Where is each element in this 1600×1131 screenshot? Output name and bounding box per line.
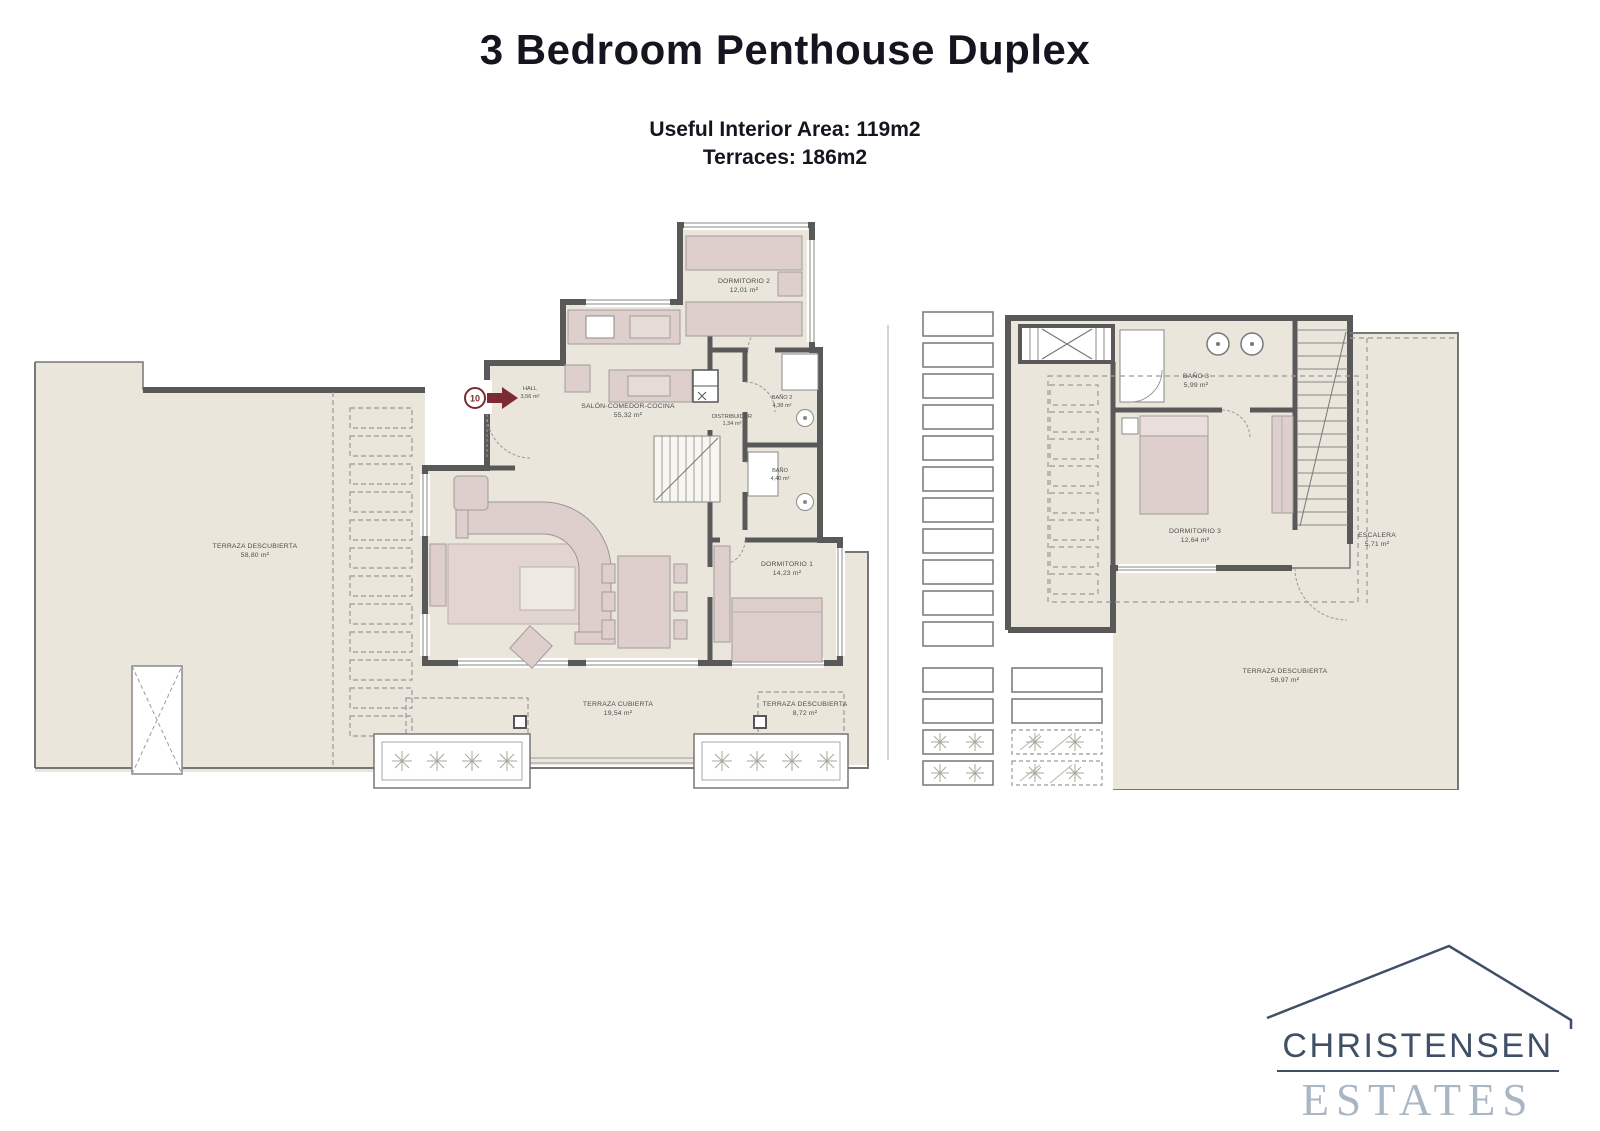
dining-table — [618, 556, 670, 648]
shower-icon — [1120, 330, 1164, 402]
rug-inner — [520, 567, 575, 610]
room-label: DORMITORIO 2 — [718, 278, 770, 285]
room-label: TERRAZA CUBIERTA — [583, 701, 653, 708]
room-label: SALÓN-COMEDOR-COCINA — [581, 401, 675, 410]
elevator-shaft-icon — [1020, 326, 1113, 362]
wardrobe — [714, 546, 730, 642]
room-label: HALL — [523, 386, 537, 392]
room-area: 5,71 m² — [1365, 541, 1390, 548]
company-logo: CHRISTENSEN ESTATES — [1253, 934, 1583, 1126]
room-area: 58,97 m² — [1271, 677, 1300, 684]
bed-icon — [732, 598, 822, 662]
nightstand — [1122, 418, 1138, 434]
floorplan-level2: BAÑO 3 5,99 m² DORMITORIO 3 12,64 m² ESC… — [880, 300, 1460, 790]
room-area: 4,40 m² — [771, 476, 790, 482]
unit-number: 10 — [470, 394, 480, 404]
room-label: BAÑO 2 — [772, 394, 793, 401]
room-label: TERRAZA DESCUBIERTA — [1243, 668, 1328, 675]
room-area: 58,80 m² — [241, 552, 270, 559]
page-title: 3 Bedroom Penthouse Duplex — [0, 26, 1570, 74]
room-label: DORMITORIO 3 — [1169, 528, 1221, 535]
subtitle-interior-area: Useful Interior Area: 119m2 — [0, 116, 1570, 144]
logo-company-type: ESTATES — [1253, 1074, 1583, 1126]
logo-divider — [1277, 1070, 1559, 1072]
room-label: BAÑO — [772, 467, 789, 474]
windows — [1118, 564, 1216, 573]
room-label: DISTRIBUIDOR — [712, 414, 752, 420]
room-area: 5,99 m² — [1184, 382, 1209, 389]
dining-table-set — [602, 556, 687, 648]
room-area: 19,54 m² — [604, 710, 633, 717]
room-area: 55,32 m² — [614, 412, 643, 419]
room-label: DORMITORIO 1 — [761, 561, 813, 568]
armchair — [454, 476, 488, 510]
room-label: BAÑO 3 — [1183, 371, 1209, 380]
room-label: TERRAZA DESCUBIERTA — [213, 543, 298, 550]
planter-right — [694, 734, 848, 788]
room-label: ESCALERA — [1358, 532, 1396, 539]
room-area: 14,23 m² — [773, 570, 802, 577]
planter-left — [374, 734, 530, 788]
room-area: 8,72 m² — [793, 710, 818, 717]
bed-icon — [686, 236, 802, 270]
sideboard — [430, 544, 446, 606]
kitchen-island-icon — [693, 370, 718, 402]
floorplan-level1: 10 HALL 3,56 m² SALÓN-COMEDOR-COCINA 55,… — [30, 212, 875, 797]
stairs-icon — [654, 436, 720, 502]
room-area: 3,56 m² — [521, 394, 540, 400]
subtitle-block: Useful Interior Area: 119m2 Terraces: 18… — [0, 116, 1570, 172]
terrace-floor — [35, 362, 425, 772]
room-area: 12,64 m² — [1181, 537, 1210, 544]
roof-icon — [1253, 934, 1583, 1030]
header: 3 Bedroom Penthouse Duplex Useful Interi… — [0, 0, 1570, 172]
lightwell-box — [132, 666, 182, 774]
brochure-page: { "page": { "title": "3 Bedroom Penthous… — [0, 0, 1600, 1131]
room-label: TERRAZA DESCUBIERTA — [763, 701, 848, 708]
room-area: 12,01 m² — [730, 287, 759, 294]
room-area: 1,34 m² — [723, 421, 742, 427]
logo-company-name: CHRISTENSEN — [1253, 1027, 1583, 1066]
subtitle-terraces: Terraces: 186m2 — [0, 144, 1570, 172]
room-area: 4,38 m² — [773, 403, 792, 409]
